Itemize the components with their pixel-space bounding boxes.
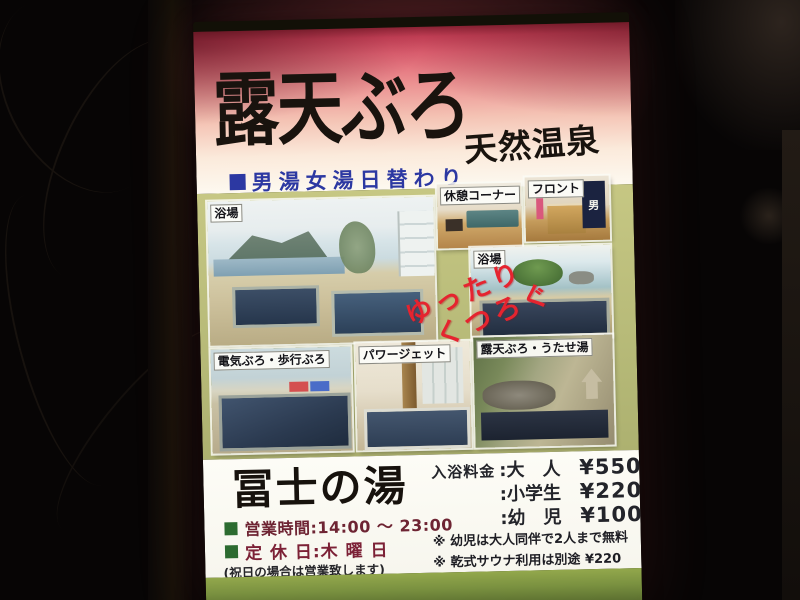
photo-label: フロント [528, 179, 584, 198]
price-amount: ¥220 [579, 478, 642, 503]
bath-window [397, 211, 434, 277]
photo-front-desk: 男 フロント [525, 176, 610, 242]
garden-rock [483, 380, 556, 410]
blue-notice-plate [311, 381, 329, 391]
bathhouse-name: 冨士の湯 [231, 463, 408, 513]
sign-subtitle: 天然温泉 [462, 113, 601, 171]
stone-lantern [581, 363, 603, 399]
photo-label: 浴場 [210, 204, 242, 223]
photo-label: 露天ぶろ・うたせ湯 [476, 338, 592, 359]
price-category: :幼 児 [500, 502, 581, 530]
mural-lake [213, 256, 344, 276]
photo-power-jet: パワージェット [355, 341, 471, 451]
blue-square-icon [229, 174, 245, 190]
photo-bath-hall-main: 浴場 [207, 197, 436, 346]
price-row-adult: 入浴料金 :大 人 ¥550 [431, 453, 642, 482]
photo-label: 休憩コーナー [440, 186, 520, 206]
rest-bench [466, 210, 518, 228]
noren-curtain: 男 [582, 181, 606, 229]
photo-open-air-bath: 露天ぶろ・うたせ湯 [473, 335, 614, 448]
noren-men-kanji: 男 [588, 197, 599, 213]
red-notice-plate [290, 382, 308, 392]
price-table: 入浴料金 :大 人 ¥550 :小学生 ¥220 :幼 児 ¥100 [431, 453, 642, 530]
front-counter [547, 203, 586, 234]
mural-tree [339, 221, 376, 274]
night-photo-scene: 露天ぶろ 天然温泉 男湯女湯日替わり 浴場 休憩コーナー 男 [0, 0, 800, 600]
bath-tub [218, 392, 351, 451]
bath-tub [232, 286, 320, 329]
open-air-pool [480, 409, 608, 440]
bathhouse-signboard: 露天ぶろ 天然温泉 男湯女湯日替わり 浴場 休憩コーナー 男 [193, 12, 642, 600]
price-label: 入浴料金 [431, 460, 499, 483]
sign-title: 露天ぶろ [212, 66, 470, 152]
green-square-icon [224, 522, 237, 535]
price-label [432, 500, 500, 502]
photo-electric-walking-bath: 電気ぶろ・歩行ぶろ [210, 347, 352, 454]
green-square-icon [225, 545, 238, 558]
photo-rest-corner: 休憩コーナー [437, 183, 522, 249]
dim-wall-patch [675, 0, 800, 150]
price-row-infant: :幼 児 ¥100 [432, 501, 642, 530]
jet-bath-tub [364, 407, 471, 450]
photo-label: 電気ぶろ・歩行ぶろ [214, 350, 330, 371]
dim-wall-edge [782, 130, 800, 600]
rest-table [446, 219, 463, 231]
price-amount: ¥550 [579, 454, 642, 479]
mural-rock [569, 271, 594, 284]
price-amount: ¥100 [580, 502, 642, 527]
